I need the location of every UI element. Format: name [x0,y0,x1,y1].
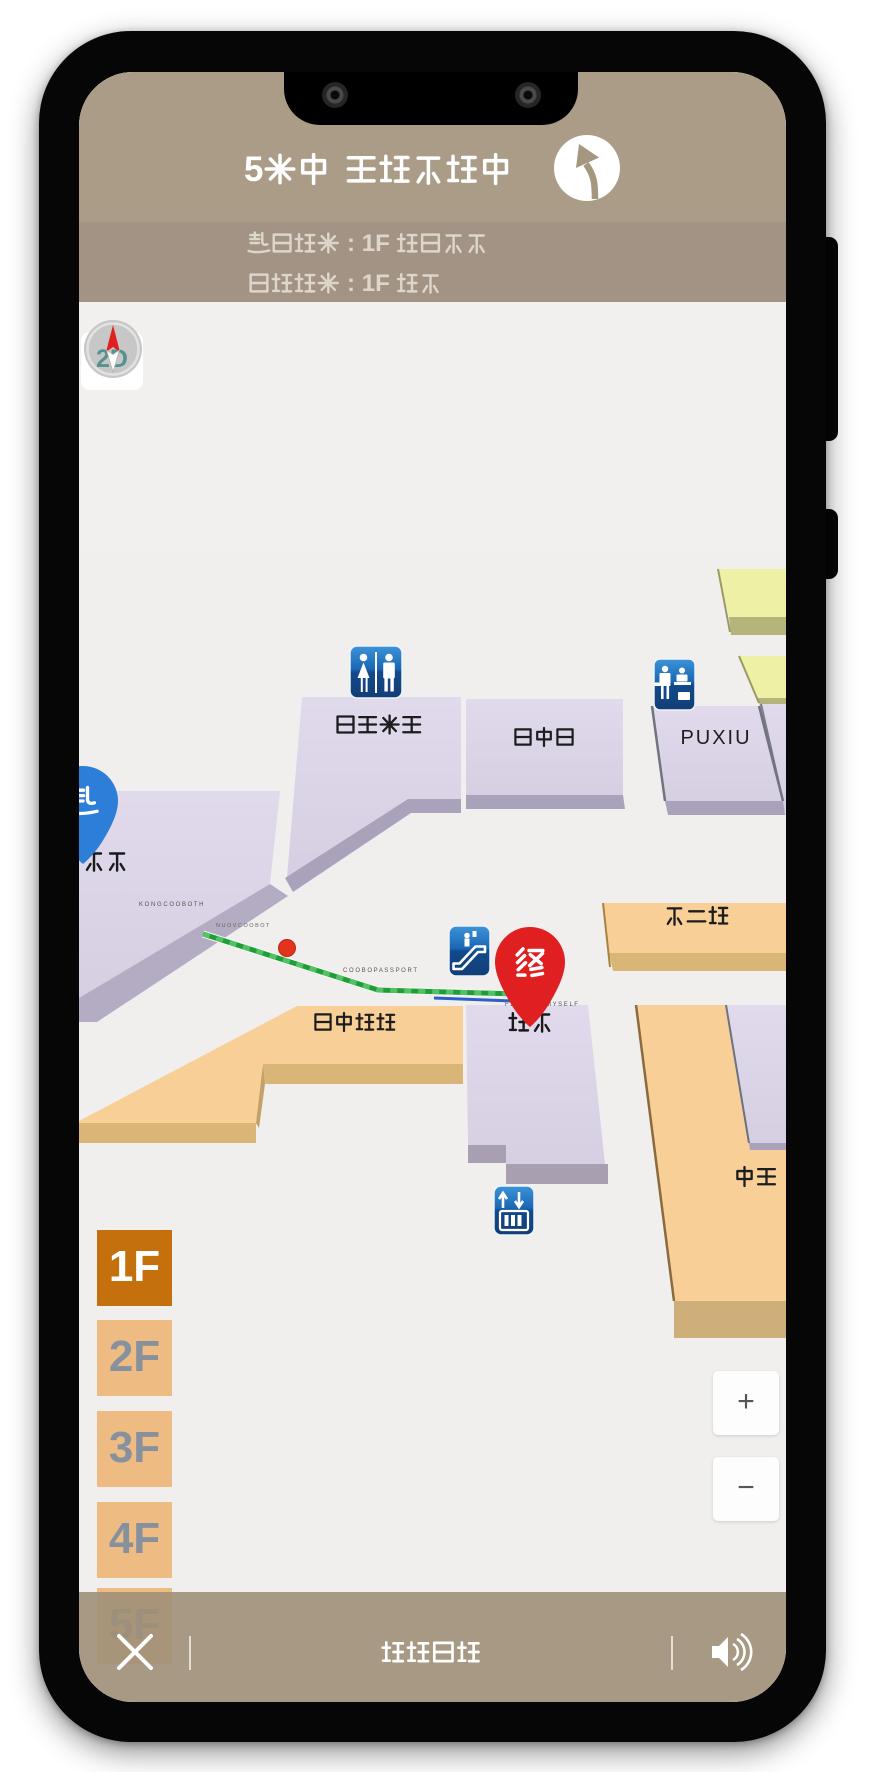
svg-text:PUXIU: PUXIU [680,727,751,749]
svg-text:K O N G C O O B O T H: K O N G C O O B O T H [139,902,203,908]
svg-text:C O O B O P A S S P O R T: C O O B O P A S S P O R T [343,968,417,974]
svg-text:: 1F: : 1F [340,270,396,297]
svg-text:N U O V C O O B O T: N U O V C O O B O T [216,923,270,929]
svg-text:: 1F: : 1F [340,230,396,257]
svg-text:5: 5 [244,150,263,189]
